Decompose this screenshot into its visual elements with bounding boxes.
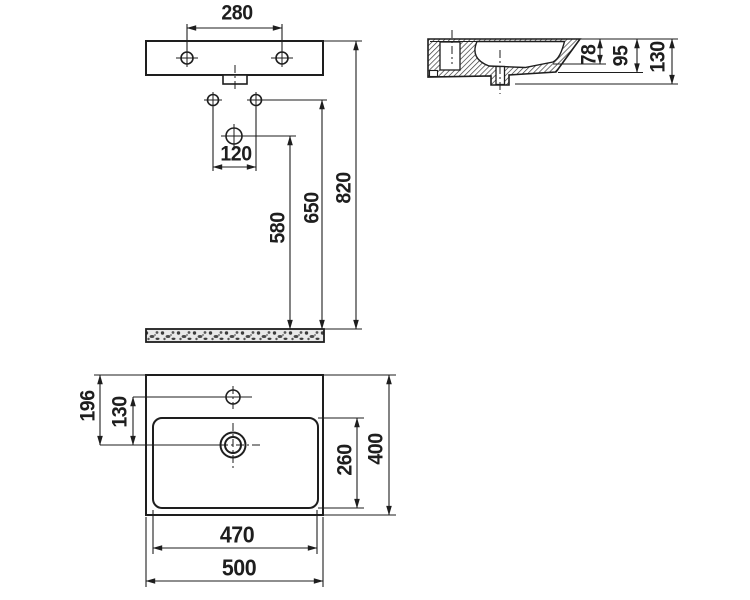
floor-line: [146, 329, 324, 342]
wall-notch: [430, 71, 438, 77]
dim-label-back-edge-to-drain: 196: [78, 390, 99, 421]
dim-label-rim-height: 820: [334, 172, 355, 203]
dim-label-basin-width: 260: [335, 444, 356, 475]
dim-label-overall-width: 400: [366, 433, 387, 464]
dim-label-tap-hole-height: 650: [302, 192, 323, 223]
dim-label-basin-depth: 78: [579, 45, 600, 66]
drawing-canvas: [0, 0, 750, 600]
tap-hole-section: [440, 42, 460, 70]
dim-label-overall-length: 500: [222, 557, 256, 580]
side-view: [428, 30, 678, 94]
front-view: [146, 24, 362, 342]
technical-drawing: 280 120 580 650 820 78 95 130 196 130 26…: [0, 0, 750, 600]
front-body-outline: [146, 41, 323, 91]
tap-holes: [204, 92, 265, 108]
dim-label-basin-length: 470: [220, 524, 254, 547]
dim-label-front-apron-height: 95: [611, 46, 632, 67]
dim-label-tap-hole-spacing: 120: [220, 144, 251, 165]
dim-label-tap-hole-to-drain: 130: [110, 396, 131, 427]
dim-label-mount-hole-spacing: 280: [221, 3, 252, 24]
dim-label-drain-height: 580: [268, 212, 289, 243]
dim-label-overall-height: 130: [648, 41, 669, 72]
